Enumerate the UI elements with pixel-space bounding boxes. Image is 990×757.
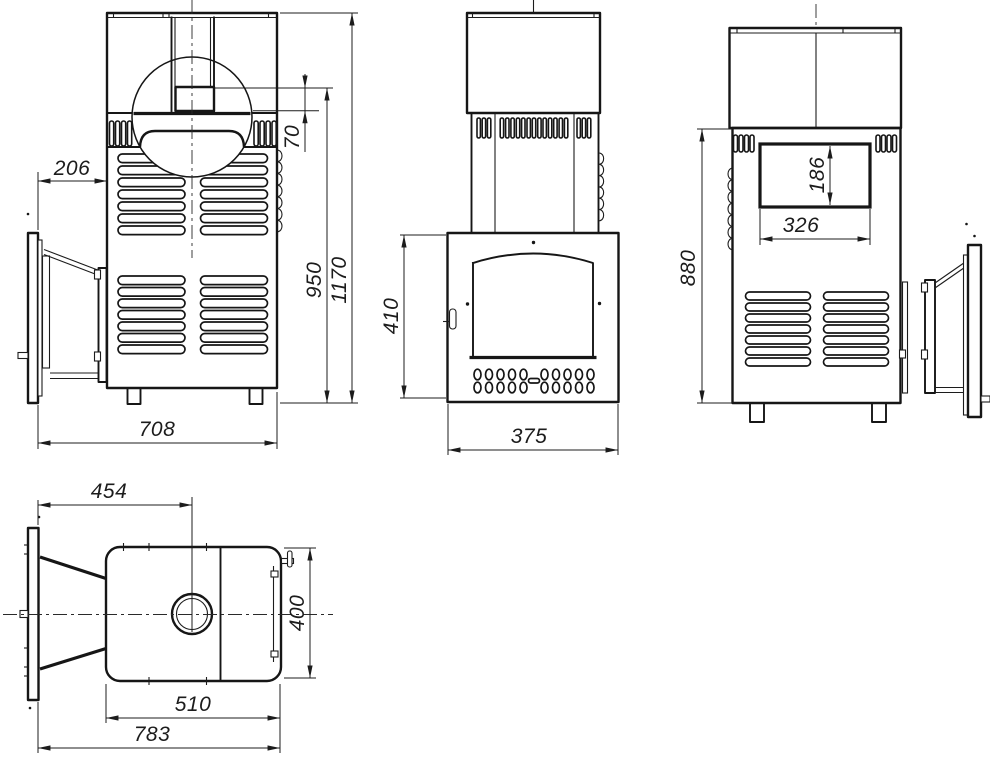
door-handle	[18, 353, 28, 359]
front-edge-fins	[600, 153, 604, 221]
dim-rear-opening-height: 186	[806, 157, 829, 194]
side-door-assembly	[18, 233, 107, 403]
technical-drawing: 206 70 950 1170 708	[0, 0, 990, 757]
mount-plate-top	[28, 528, 39, 700]
front-view-dimensions: 410 375	[380, 235, 618, 455]
air-slot-dash	[529, 379, 540, 384]
top-view	[3, 516, 333, 710]
dim-front-door-height: 410	[380, 298, 403, 335]
rear-chimney-box	[730, 28, 902, 128]
side-louvers-lower	[118, 276, 268, 354]
tunnel-handle	[20, 611, 28, 618]
dim-body-height: 950	[303, 262, 326, 299]
top-tunnel	[20, 528, 106, 700]
dim-total-height: 1170	[328, 256, 351, 303]
side-foot-right	[250, 388, 263, 404]
rear-view	[728, 4, 990, 422]
mount-plate	[28, 233, 38, 403]
door-edge	[925, 280, 935, 393]
rear-foot-left	[750, 403, 764, 422]
dim-side-front-offset: 206	[53, 157, 91, 180]
side-foot-left	[128, 388, 141, 404]
door-handle	[981, 396, 990, 402]
rear-louvers	[746, 292, 889, 366]
dim-top-depth: 400	[286, 595, 309, 632]
dim-rear-height: 880	[677, 250, 700, 287]
front-view	[443, 0, 619, 402]
screw-left	[466, 302, 469, 305]
chimney-outlet	[176, 87, 215, 111]
door-edge	[99, 268, 107, 382]
dim-top-tunnel-length: 454	[91, 480, 128, 503]
dim-rear-opening-width: 326	[783, 214, 820, 237]
door-window	[473, 254, 593, 358]
mount-plate	[968, 245, 981, 417]
front-air-holes	[474, 369, 594, 393]
drawing-canvas: 206 70 950 1170 708	[0, 0, 990, 757]
screw-right	[598, 302, 601, 305]
rear-door-assembly	[900, 223, 990, 417]
dim-chimney-step: 70	[281, 125, 304, 149]
dim-top-total-width: 783	[134, 723, 171, 746]
dim-side-width: 708	[139, 418, 176, 441]
dim-front-width: 375	[511, 425, 548, 448]
side-view	[18, 0, 282, 404]
front-chimney-box	[467, 13, 600, 113]
screw-top	[532, 241, 535, 244]
rear-foot-right	[872, 403, 886, 422]
dim-top-body-width: 510	[175, 693, 212, 716]
front-door-handle	[450, 309, 457, 329]
